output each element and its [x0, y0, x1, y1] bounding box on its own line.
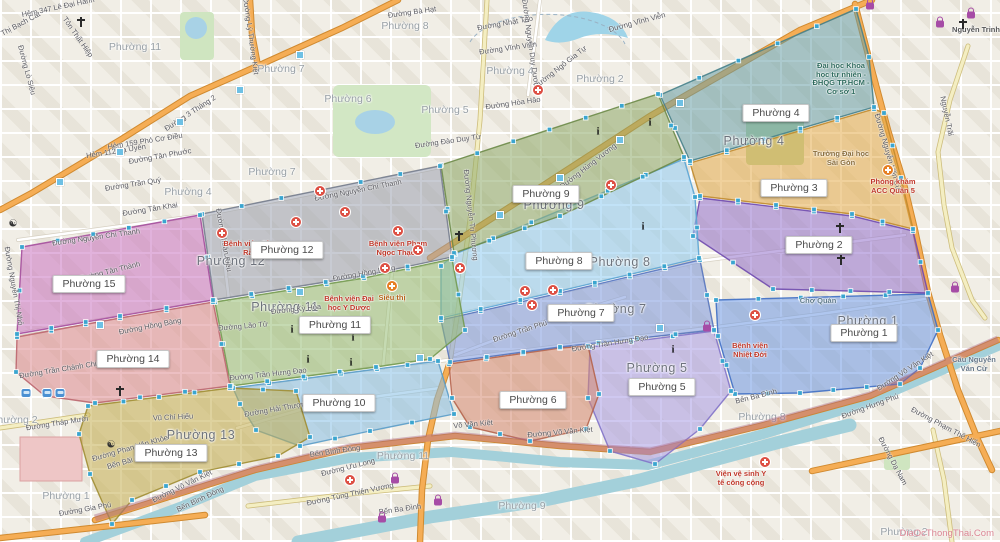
- hospital-icon[interactable]: [527, 300, 537, 310]
- church-icon[interactable]: [839, 223, 841, 233]
- ward-label-phuong-10[interactable]: Phường 10: [302, 394, 375, 412]
- vertex-handle[interactable]: [731, 260, 736, 265]
- hospital-icon[interactable]: [291, 217, 301, 227]
- poi-label: Nguyễn Trinh: [951, 26, 1000, 35]
- vertex-handle[interactable]: [93, 401, 98, 406]
- vertex-handle[interactable]: [294, 389, 299, 394]
- vertex-handle[interactable]: [511, 139, 516, 144]
- ward-label-phuong-2[interactable]: Phường 2: [785, 236, 852, 254]
- shopping-icon[interactable]: [936, 21, 944, 28]
- vertex-handle[interactable]: [405, 363, 410, 368]
- vertex-handle[interactable]: [337, 369, 342, 374]
- vertex-handle[interactable]: [835, 116, 840, 121]
- vertex-handle[interactable]: [558, 214, 563, 219]
- vertex-handle[interactable]: [333, 436, 338, 441]
- vertex-handle[interactable]: [729, 389, 734, 394]
- temple-icon[interactable]: ☯: [9, 219, 18, 230]
- vertex-handle[interactable]: [547, 127, 552, 132]
- vertex-handle[interactable]: [444, 209, 449, 214]
- shopping-icon[interactable]: [391, 477, 399, 484]
- vertex-handle[interactable]: [110, 522, 115, 527]
- vertex-handle[interactable]: [121, 399, 126, 404]
- vertex-handle[interactable]: [448, 360, 453, 365]
- ward-label-phuong-5[interactable]: Phường 5: [628, 378, 695, 396]
- vertex-handle[interactable]: [198, 213, 203, 218]
- ward-label-phuong-6[interactable]: Phường 6: [499, 391, 566, 409]
- vertex-handle[interactable]: [323, 280, 328, 285]
- vertex-handle[interactable]: [138, 395, 143, 400]
- info-icon[interactable]: i: [352, 333, 355, 344]
- vertex-handle[interactable]: [599, 194, 604, 199]
- hospital-icon[interactable]: [455, 263, 465, 273]
- hospital-icon[interactable]: [217, 228, 227, 238]
- vertex-handle[interactable]: [850, 212, 855, 217]
- vertex-handle[interactable]: [640, 174, 645, 179]
- bus-icon[interactable]: [43, 389, 52, 397]
- poi-label: Phòng khám ACC Quận 5: [864, 178, 922, 195]
- vertex-handle[interactable]: [276, 454, 281, 459]
- transit-stop-icon[interactable]: [556, 174, 564, 182]
- vertex-handle[interactable]: [521, 350, 526, 355]
- bus-icon[interactable]: [22, 389, 31, 397]
- info-icon[interactable]: i: [307, 355, 310, 366]
- vertex-handle[interactable]: [522, 226, 527, 231]
- church-icon[interactable]: [458, 231, 460, 241]
- vertex-handle[interactable]: [918, 260, 923, 265]
- vertex-handle[interactable]: [558, 345, 563, 350]
- vertex-handle[interactable]: [157, 395, 162, 400]
- transit-stop-icon[interactable]: [616, 136, 624, 144]
- vertex-handle[interactable]: [887, 290, 892, 295]
- vertex-handle[interactable]: [279, 196, 284, 201]
- vertex-handle[interactable]: [586, 396, 591, 401]
- vertex-handle[interactable]: [810, 288, 815, 293]
- vertex-handle[interactable]: [118, 314, 123, 319]
- clinic-icon[interactable]: [883, 165, 893, 175]
- vertex-handle[interactable]: [656, 92, 661, 97]
- vertex-handle[interactable]: [487, 238, 492, 243]
- vertex-handle[interactable]: [436, 359, 441, 364]
- poi-label: Bệnh viện Phạm Ngọc Thạch: [362, 240, 434, 257]
- hospital-icon[interactable]: [520, 286, 530, 296]
- background-ward-label: Phường 13: [167, 428, 236, 442]
- vertex-handle[interactable]: [736, 198, 741, 203]
- vertex-handle[interactable]: [653, 462, 658, 467]
- info-icon[interactable]: i: [642, 222, 645, 233]
- vertex-handle[interactable]: [528, 439, 533, 444]
- shopping-icon[interactable]: [703, 325, 711, 332]
- vertex-handle[interactable]: [583, 115, 588, 120]
- shopping-icon[interactable]: [967, 12, 975, 19]
- vertex-handle[interactable]: [608, 449, 613, 454]
- church-icon[interactable]: [840, 255, 842, 265]
- vertex-handle[interactable]: [627, 272, 632, 277]
- vertex-handle[interactable]: [662, 264, 667, 269]
- vertex-handle[interactable]: [228, 384, 233, 389]
- hospital-icon[interactable]: [380, 263, 390, 273]
- vertex-handle[interactable]: [695, 225, 700, 230]
- vertex-handle[interactable]: [254, 428, 259, 433]
- vertex-handle[interactable]: [192, 390, 197, 395]
- transit-stop-icon[interactable]: [676, 99, 684, 107]
- vertex-handle[interactable]: [756, 297, 761, 302]
- ward-label-phuong-9[interactable]: Phường 9: [512, 185, 579, 203]
- hospital-icon[interactable]: [345, 475, 355, 485]
- transit-stop-icon[interactable]: [296, 51, 304, 59]
- ward-label-phuong-8[interactable]: Phường 8: [525, 252, 592, 270]
- transit-stop-icon[interactable]: [296, 288, 304, 296]
- poi-label: Cầu Nguyễn Văn Cừ: [951, 356, 997, 373]
- vertex-handle[interactable]: [452, 412, 457, 417]
- vertex-handle[interactable]: [211, 298, 216, 303]
- background-ward-label: Phường 8: [590, 255, 651, 269]
- vertex-handle[interactable]: [249, 292, 254, 297]
- vertex-handle[interactable]: [673, 332, 678, 337]
- church-icon[interactable]: [962, 19, 964, 29]
- vertex-handle[interactable]: [463, 328, 468, 333]
- shopping-icon[interactable]: [951, 286, 959, 293]
- vertex-handle[interactable]: [374, 365, 379, 370]
- info-icon[interactable]: i: [672, 345, 675, 356]
- vertex-handle[interactable]: [478, 307, 483, 312]
- poi-label: Đại học Khoa học tự nhiên - ĐHQG TP.HCM …: [810, 62, 872, 97]
- vertex-handle[interactable]: [83, 320, 88, 325]
- vertex-handle[interactable]: [484, 355, 489, 360]
- vertex-handle[interactable]: [261, 387, 266, 392]
- transit-stop-icon[interactable]: [236, 86, 244, 94]
- transit-stop-icon[interactable]: [496, 211, 504, 219]
- vertex-handle[interactable]: [848, 289, 853, 294]
- vertex-handle[interactable]: [936, 328, 941, 333]
- vertex-handle[interactable]: [219, 342, 224, 347]
- vertex-handle[interactable]: [698, 427, 703, 432]
- hospital-icon[interactable]: [760, 457, 770, 467]
- vertex-handle[interactable]: [714, 298, 719, 303]
- church-icon[interactable]: [80, 17, 82, 27]
- ward-label-phuong-1[interactable]: Phường 1: [830, 324, 897, 342]
- vertex-handle[interactable]: [308, 435, 313, 440]
- poi-label: Bệnh viện Nhiệt Đới: [723, 342, 778, 359]
- vertex-handle[interactable]: [771, 287, 776, 292]
- vertex-handle[interactable]: [439, 264, 444, 269]
- church-icon[interactable]: [119, 386, 121, 396]
- watermark: DiaOcThongThai.Com: [899, 528, 994, 539]
- vertex-handle[interactable]: [286, 286, 291, 291]
- vertex-handle[interactable]: [428, 357, 433, 362]
- transit-stop-icon[interactable]: [96, 321, 104, 329]
- ward-label-phuong-12[interactable]: Phường 12: [250, 241, 323, 259]
- vertex-handle[interactable]: [498, 432, 503, 437]
- shopping-icon[interactable]: [378, 516, 386, 523]
- vertex-handle[interactable]: [88, 472, 93, 477]
- vertex-handle[interactable]: [831, 388, 836, 393]
- clinic-icon[interactable]: [387, 281, 397, 291]
- bus-icon[interactable]: [56, 389, 65, 397]
- info-icon[interactable]: i: [597, 127, 600, 138]
- vertex-handle[interactable]: [867, 55, 872, 60]
- vertex-handle[interactable]: [854, 7, 859, 12]
- vertex-handle[interactable]: [237, 462, 242, 467]
- vertex-handle[interactable]: [518, 298, 523, 303]
- vertex-handle[interactable]: [298, 444, 303, 449]
- vertex-handle[interactable]: [86, 404, 91, 409]
- vertex-handle[interactable]: [20, 245, 25, 250]
- vertex-handle[interactable]: [697, 256, 702, 261]
- vertex-handle[interactable]: [15, 332, 20, 337]
- vertex-handle[interactable]: [712, 328, 717, 333]
- hospital-icon[interactable]: [340, 207, 350, 217]
- transit-stop-icon[interactable]: [56, 178, 64, 186]
- vertex-handle[interactable]: [239, 204, 244, 209]
- vertex-handle[interactable]: [882, 111, 887, 116]
- poi-label: Trường Đại học Sài Gòn: [812, 150, 870, 167]
- vertex-handle[interactable]: [911, 227, 916, 232]
- hospital-icon[interactable]: [393, 226, 403, 236]
- vertex-handle[interactable]: [716, 334, 721, 339]
- info-icon[interactable]: i: [291, 325, 294, 336]
- vertex-handle[interactable]: [864, 385, 869, 390]
- shopping-icon[interactable]: [434, 499, 442, 506]
- vertex-handle[interactable]: [593, 280, 598, 285]
- background-ward-label: Phường 5: [627, 361, 688, 375]
- vertex-handle[interactable]: [669, 123, 674, 128]
- vertex-handle[interactable]: [682, 155, 687, 160]
- vertex-handle[interactable]: [368, 429, 373, 434]
- vertex-handle[interactable]: [720, 359, 725, 364]
- vertex-handle[interactable]: [815, 24, 820, 29]
- vertex-handle[interactable]: [926, 291, 931, 296]
- vertex-handle[interactable]: [398, 172, 403, 177]
- poi-label: Chợ Quán: [788, 297, 848, 306]
- poi-label: Viện vệ sinh Y tế công cộng: [714, 470, 769, 487]
- vertex-handle[interactable]: [410, 420, 415, 425]
- ward-label-phuong-3[interactable]: Phường 3: [760, 179, 827, 197]
- vertex-handle[interactable]: [775, 41, 780, 46]
- vertex-handle[interactable]: [620, 104, 625, 109]
- info-icon[interactable]: i: [649, 118, 652, 129]
- transit-stop-icon[interactable]: [656, 324, 664, 332]
- vertex-handle[interactable]: [736, 58, 741, 63]
- vertex-handle[interactable]: [688, 159, 693, 164]
- vertex-handle[interactable]: [872, 105, 877, 110]
- ward-label-phuong-14[interactable]: Phường 14: [96, 350, 169, 368]
- ward-label-phuong-11[interactable]: Phường 11: [299, 316, 371, 334]
- vertex-handle[interactable]: [529, 220, 534, 225]
- vertex-handle[interactable]: [697, 76, 702, 81]
- transit-stop-icon[interactable]: [416, 354, 424, 362]
- ward-label-phuong-4[interactable]: Phường 4: [742, 104, 809, 122]
- vertex-handle[interactable]: [438, 164, 443, 169]
- vertex-handle[interactable]: [49, 326, 54, 331]
- vertex-handle[interactable]: [77, 432, 82, 437]
- vertex-handle[interactable]: [183, 389, 188, 394]
- ward-polygon-phuong-5[interactable]: [588, 331, 731, 464]
- vertex-handle[interactable]: [812, 207, 817, 212]
- temple-icon[interactable]: ☯: [107, 440, 116, 451]
- vertex-handle[interactable]: [693, 195, 698, 200]
- vertex-handle[interactable]: [798, 391, 803, 396]
- hospital-icon[interactable]: [548, 285, 558, 295]
- vertex-handle[interactable]: [130, 498, 135, 503]
- vertex-handle[interactable]: [238, 402, 243, 407]
- vertex-handle[interactable]: [691, 234, 696, 239]
- hospital-icon[interactable]: [315, 186, 325, 196]
- vertex-handle[interactable]: [450, 396, 455, 401]
- shopping-icon[interactable]: [866, 3, 874, 10]
- poi-label: Siêu thị: [367, 294, 417, 303]
- ward-label-phuong-13[interactable]: Phường 13: [134, 444, 207, 462]
- vertex-handle[interactable]: [774, 203, 779, 208]
- vertex-handle[interactable]: [597, 392, 602, 397]
- vertex-handle[interactable]: [164, 306, 169, 311]
- hospital-icon[interactable]: [533, 85, 543, 95]
- vertex-handle[interactable]: [898, 382, 903, 387]
- vertex-handle[interactable]: [450, 255, 455, 260]
- map-canvas[interactable]: Phường 11Phường 8Phường 4Phường 2Phường …: [0, 0, 1000, 542]
- transit-stop-icon[interactable]: [116, 148, 124, 156]
- vertex-handle[interactable]: [558, 289, 563, 294]
- transit-stop-icon[interactable]: [176, 118, 184, 126]
- hospital-icon[interactable]: [750, 310, 760, 320]
- vertex-handle[interactable]: [405, 264, 410, 269]
- background-ward-label: Phường 4: [724, 134, 785, 148]
- vertex-handle[interactable]: [265, 379, 270, 384]
- vertex-handle[interactable]: [880, 219, 885, 224]
- vertex-handle[interactable]: [162, 219, 167, 224]
- vertex-handle[interactable]: [439, 316, 444, 321]
- vertex-handle[interactable]: [705, 293, 710, 298]
- vertex-handle[interactable]: [798, 126, 803, 131]
- info-icon[interactable]: i: [350, 358, 353, 369]
- vertex-handle[interactable]: [725, 148, 730, 153]
- ward-label-phuong-15[interactable]: Phường 15: [52, 275, 125, 293]
- hospital-icon[interactable]: [606, 180, 616, 190]
- vertex-handle[interactable]: [698, 194, 703, 199]
- vertex-handle[interactable]: [475, 151, 480, 156]
- hospital-icon[interactable]: [413, 245, 423, 255]
- ward-label-phuong-7[interactable]: Phường 7: [547, 304, 614, 322]
- vertex-handle[interactable]: [456, 292, 461, 297]
